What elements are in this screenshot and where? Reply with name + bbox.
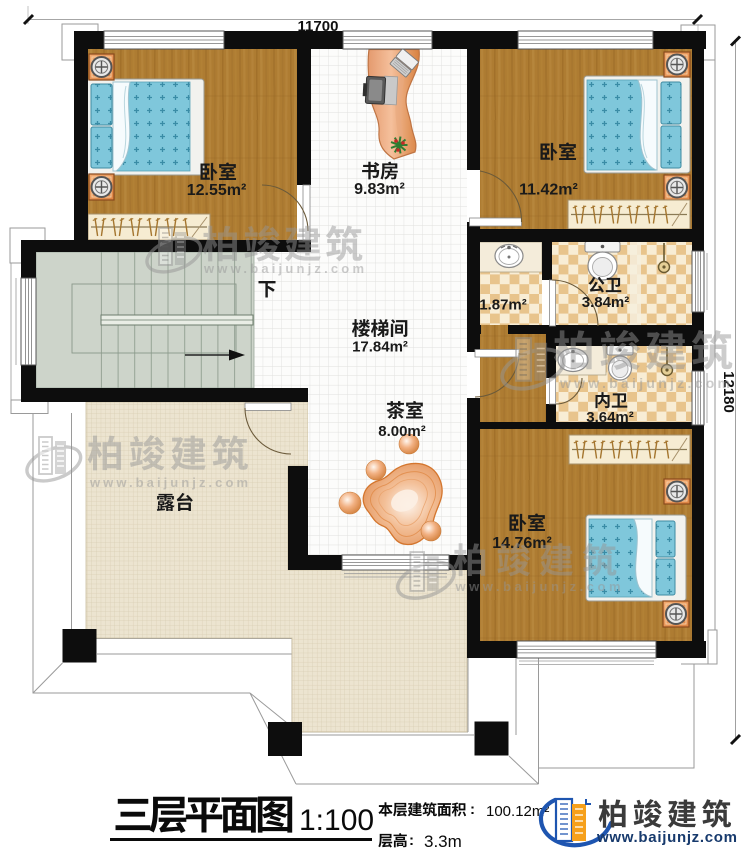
svg-text:1.87m²: 1.87m² [479,296,527,313]
svg-text:www.baijunjz.com: www.baijunjz.com [596,829,737,846]
svg-text:17.84m²: 17.84m² [352,338,408,355]
svg-text:3.84m²: 3.84m² [582,294,630,311]
svg-text:3.64m²: 3.64m² [586,409,634,426]
svg-text:11.42m²: 11.42m² [519,181,578,198]
svg-text:8.00m²: 8.00m² [378,423,426,440]
svg-text::: : [470,801,475,818]
svg-text:9.83m²: 9.83m² [354,181,405,198]
svg-text:12.55m²: 12.55m² [187,182,247,199]
svg-text:1:100: 1:100 [299,804,374,837]
svg-text:3.3m: 3.3m [424,832,462,851]
svg-text::: : [409,832,414,849]
